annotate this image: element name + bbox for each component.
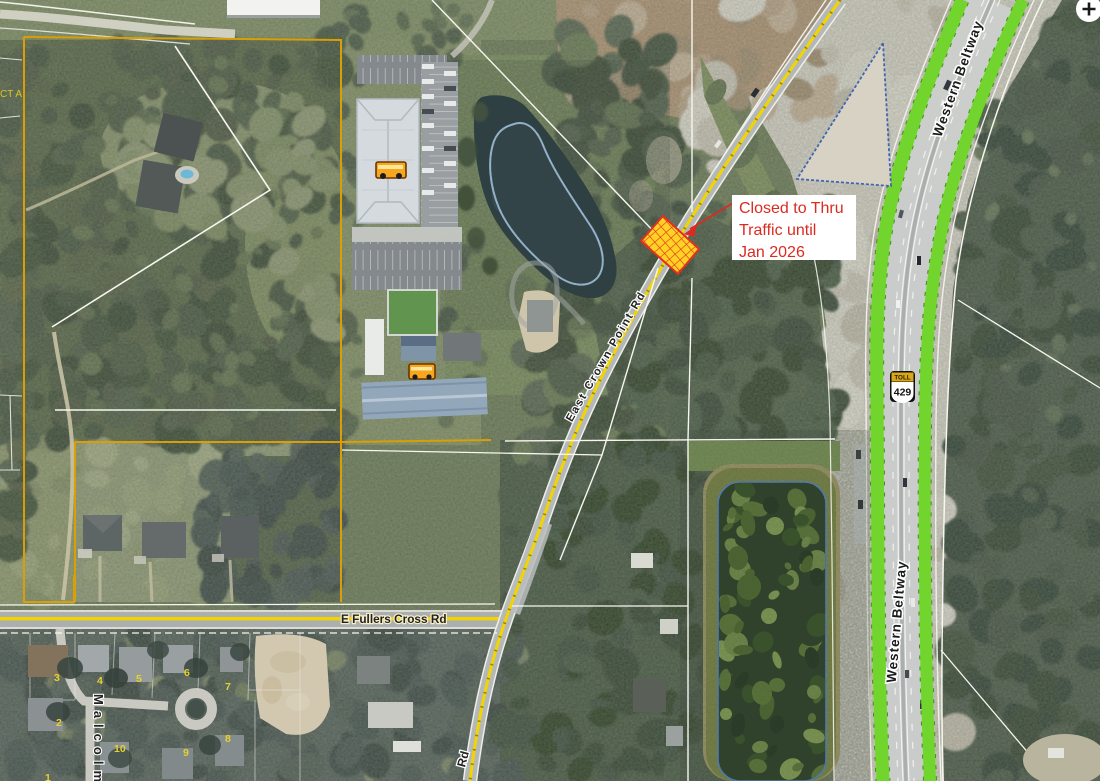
svg-text:9: 9	[183, 747, 189, 759]
svg-text:7: 7	[225, 681, 231, 693]
svg-text:TOLL: TOLL	[894, 375, 910, 382]
svg-text:429: 429	[894, 387, 912, 399]
svg-text:10: 10	[114, 743, 126, 755]
svg-text:Traffic until: Traffic until	[739, 222, 816, 239]
svg-text:1: 1	[45, 772, 51, 781]
svg-text:2: 2	[56, 717, 62, 729]
svg-text:CT A: CT A	[0, 89, 22, 100]
svg-text:8: 8	[225, 733, 231, 745]
svg-text:Malcolm: Malcolm	[91, 694, 106, 781]
svg-text:3: 3	[54, 672, 60, 684]
svg-text:4: 4	[97, 675, 103, 687]
svg-text:E Fullers Cross Rd: E Fullers Cross Rd	[341, 612, 447, 626]
svg-text:5: 5	[136, 673, 142, 685]
svg-text:Closed to Thru: Closed to Thru	[739, 200, 844, 217]
svg-text:Jan 2026: Jan 2026	[739, 244, 805, 261]
svg-text:6: 6	[184, 667, 190, 679]
